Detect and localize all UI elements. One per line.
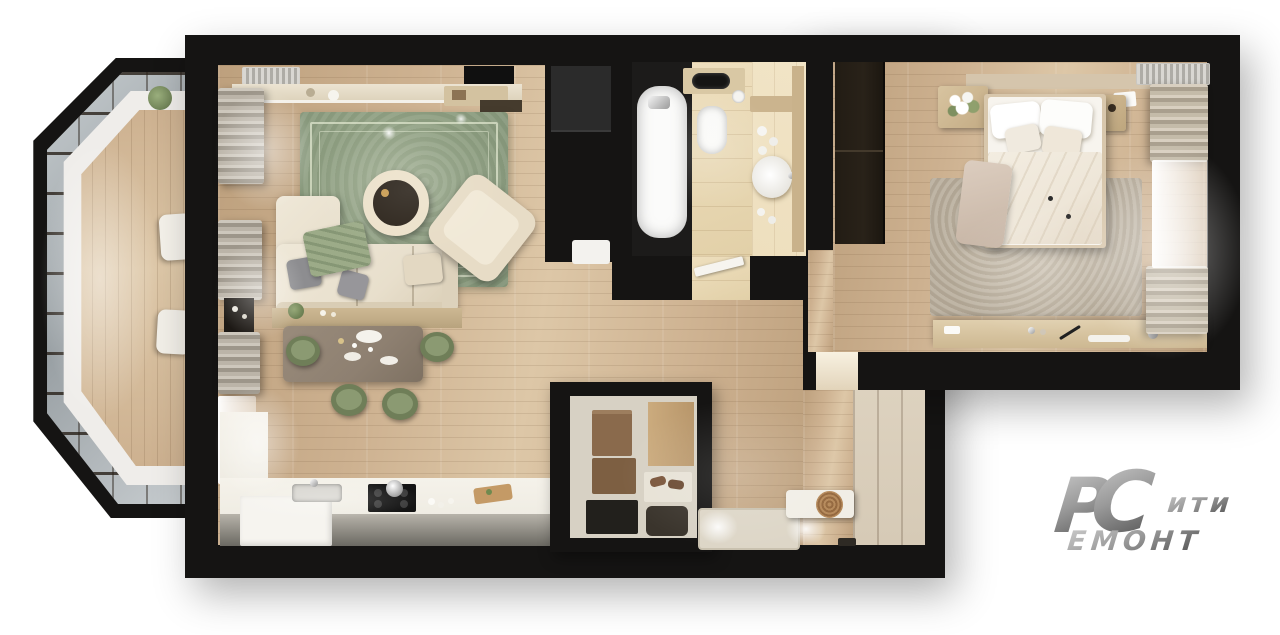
- dining-plate: [356, 330, 382, 343]
- bedroom-doorway: [816, 352, 858, 390]
- flower-vase: [946, 90, 982, 120]
- entry-door-nook: [853, 390, 925, 545]
- closet-door-panel: [648, 402, 694, 466]
- toiletry-jar: [768, 216, 776, 224]
- dining-chair-seat: [291, 340, 315, 360]
- built-in-cabinet: [551, 66, 611, 132]
- dining-chair: [286, 336, 320, 366]
- perfume-bottle: [1028, 327, 1035, 334]
- herb-garnish: [486, 489, 492, 495]
- dining-plate: [344, 352, 361, 361]
- niche-bottle: [232, 306, 238, 312]
- bedroom-roman-curtain: [1150, 84, 1208, 162]
- tv-unit: [464, 66, 514, 84]
- kitchen-island-cabinet: [240, 496, 332, 546]
- entry-mat: [698, 508, 800, 550]
- living-roman-curtain: [218, 220, 262, 300]
- wall-niche-cabinet: [224, 298, 254, 332]
- hallway-floor-extension: [803, 390, 853, 545]
- niche-bottle: [242, 314, 247, 319]
- living-roman-curtain: [218, 332, 260, 394]
- kitchen-jar: [438, 502, 444, 508]
- media-shelf: [480, 100, 522, 112]
- vanity-tray: [1088, 335, 1130, 342]
- dining-glass: [368, 347, 373, 352]
- coffee-table: [363, 170, 429, 236]
- radiator: [242, 67, 300, 85]
- dining-chair: [382, 388, 418, 420]
- logo-word-bottom: ЕМОНТ: [1066, 528, 1203, 555]
- vanity-switch: [944, 326, 960, 334]
- balcony-plant: [148, 86, 172, 110]
- nightstand-decor: [1108, 104, 1116, 112]
- bedroom-roman-curtain: [1146, 266, 1208, 334]
- floorplan-render: Р С ити ЕМОНТ: [0, 0, 1280, 635]
- sofa-pillow-beige: [403, 252, 444, 286]
- bedroom-sheer-curtain: [1152, 160, 1208, 268]
- dining-plate: [380, 356, 398, 365]
- headboard-ledge: [966, 74, 1156, 89]
- dining-chair: [331, 384, 367, 416]
- towel-roll: [769, 137, 778, 146]
- burner: [400, 500, 408, 508]
- pot: [386, 480, 403, 497]
- toilet-paper-roll: [732, 90, 745, 103]
- wardrobe-divider: [835, 150, 883, 152]
- bed-decor-dot: [1048, 196, 1053, 201]
- kitchen-jar: [448, 498, 454, 504]
- hall-side-cabinet: [572, 240, 610, 264]
- entry-decor-item: [838, 538, 856, 546]
- book-stack: [452, 90, 466, 100]
- toilet: [697, 106, 727, 154]
- black-basin: [692, 73, 730, 89]
- bedroom-wardrobe: [835, 62, 885, 244]
- dining-glass: [352, 343, 357, 348]
- shelf-decor: [306, 88, 315, 97]
- bath-faucet: [648, 96, 670, 109]
- kitchen-sink: [292, 484, 342, 502]
- burner: [374, 489, 382, 497]
- coffee-table-candle: [381, 189, 389, 197]
- bedroom-floor-left: [808, 250, 833, 352]
- dining-chair-seat: [425, 336, 449, 356]
- bed-throw-blanket: [955, 159, 1013, 248]
- perfume-bottle: [1040, 329, 1046, 335]
- towel-roll: [758, 146, 767, 155]
- dining-chair-seat: [336, 389, 362, 410]
- kitchen-counter-side: [220, 412, 268, 480]
- living-roman-curtain: [218, 88, 264, 184]
- dining-chair-seat: [387, 393, 413, 414]
- bathroom-wall-counter: [792, 66, 804, 252]
- towel-roll: [757, 126, 767, 136]
- kitchen-faucet: [310, 479, 318, 487]
- console-candle: [331, 312, 336, 317]
- storage-box: [592, 458, 636, 494]
- brand-logo: Р С ити ЕМОНТ: [1043, 468, 1264, 568]
- ac-unit: [1136, 63, 1210, 85]
- console-plant: [288, 303, 304, 319]
- storage-box: [592, 410, 632, 456]
- woven-plate-decor: [816, 491, 843, 518]
- kitchen-jar: [428, 498, 435, 505]
- storage-basket: [646, 506, 688, 536]
- bed-decor-dot: [1066, 214, 1071, 219]
- toiletry-jar: [757, 208, 765, 216]
- closet-drawers: [586, 500, 638, 534]
- console-candle: [320, 310, 326, 316]
- burner: [374, 500, 382, 508]
- logo-word-top: ити: [1166, 490, 1234, 517]
- dining-candle: [338, 338, 344, 344]
- shelf-decor: [328, 90, 339, 101]
- dining-chair: [420, 332, 454, 362]
- bathroom-sink: [752, 156, 792, 198]
